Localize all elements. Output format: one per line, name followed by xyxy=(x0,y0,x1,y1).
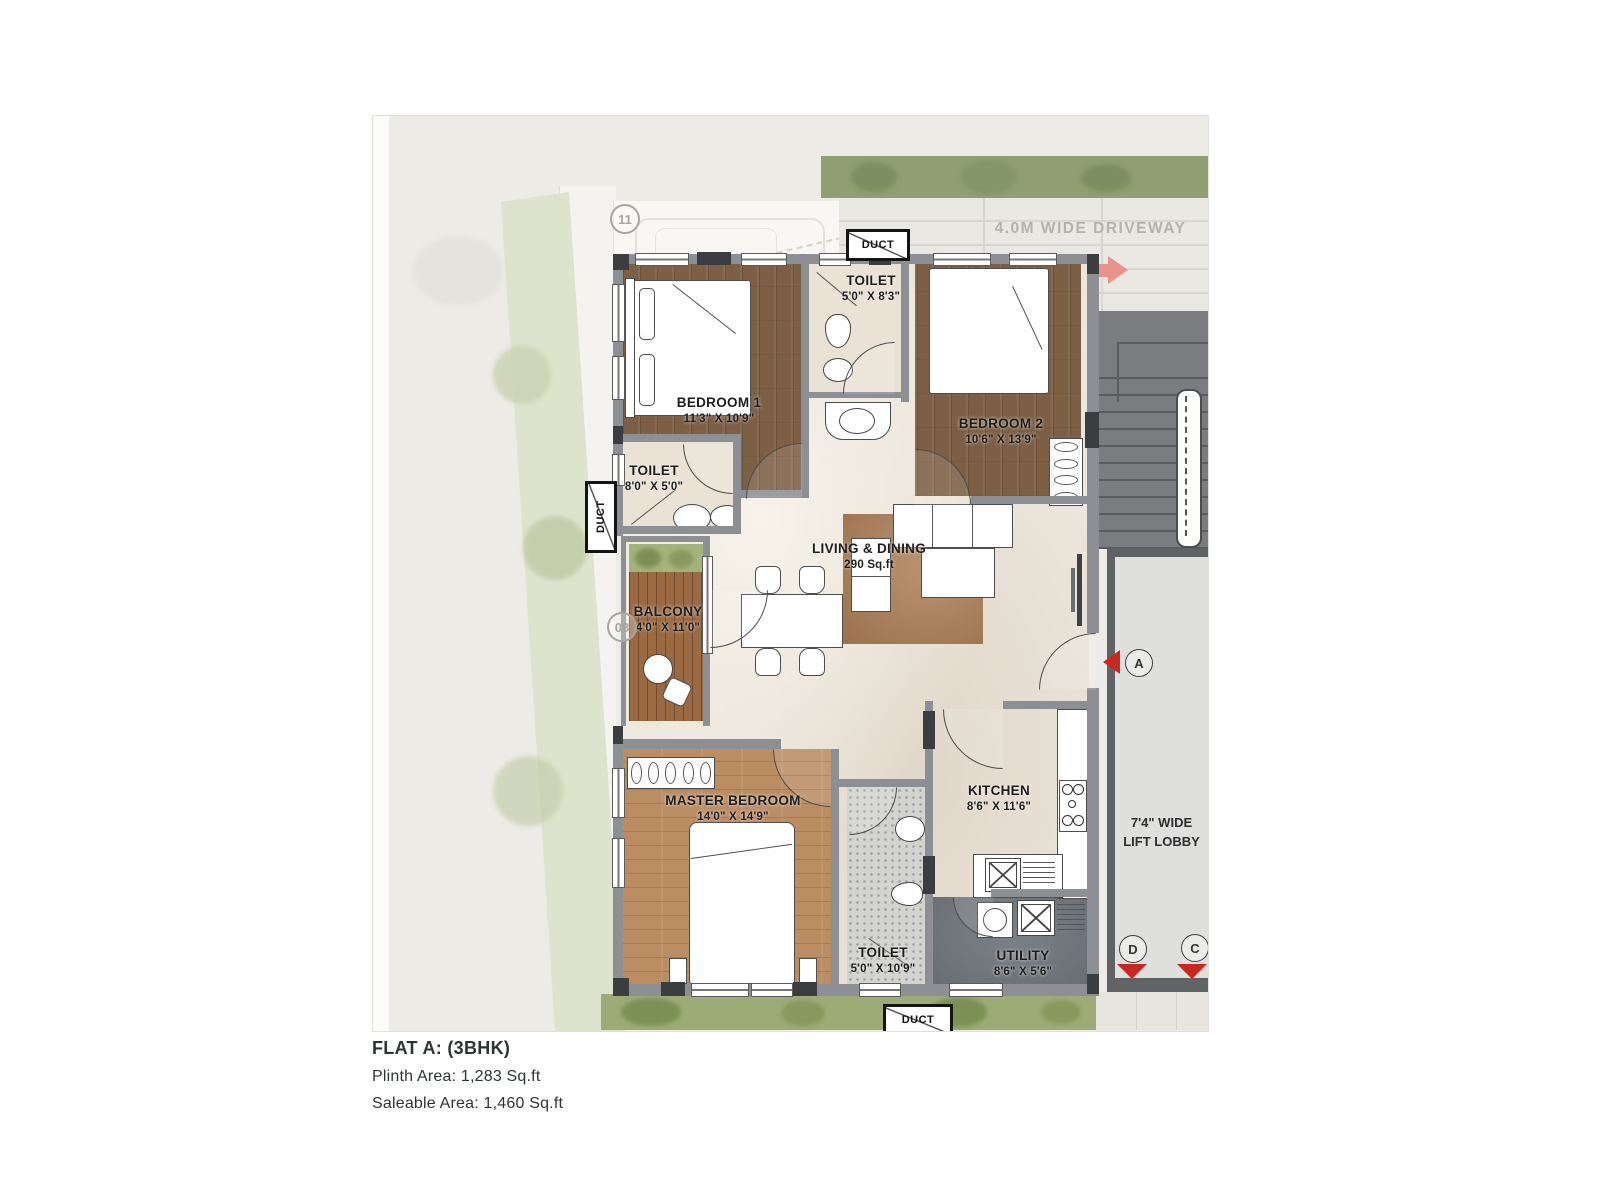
wall-bed1-south-left xyxy=(613,434,741,442)
wall-block xyxy=(1085,412,1099,448)
site-left-margin xyxy=(373,116,389,1031)
tree-blob xyxy=(523,516,587,580)
wall-block xyxy=(697,252,731,265)
lobby-wall xyxy=(1107,978,1208,992)
label-balcony: BALCONY 4'0" X 11'0" xyxy=(634,604,703,634)
window xyxy=(949,983,1003,997)
entry-marker-a: A xyxy=(1125,649,1153,677)
window xyxy=(612,768,625,818)
garden-strip xyxy=(601,994,1096,1030)
label-master-bedroom: MASTER BEDROOM 14'0" X 14'9" xyxy=(665,793,800,823)
wall-utility-north xyxy=(991,889,1099,897)
wall-block xyxy=(923,856,935,894)
hedge-strip xyxy=(821,156,1208,198)
plan-caption: FLAT A: (3BHK) Plinth Area: 1,283 Sq.ft … xyxy=(372,1038,563,1113)
duct-bottom: DUCT xyxy=(883,1004,953,1032)
bed-headboard xyxy=(625,278,635,418)
driveway-direction-arrow-head xyxy=(1108,256,1128,284)
entry-arrow-a xyxy=(1103,650,1120,674)
bedside-table xyxy=(669,958,687,984)
tv-console xyxy=(1071,568,1075,612)
kitchen-sink xyxy=(985,858,1021,892)
plinth-area: Plinth Area: 1,283 Sq.ft xyxy=(372,1068,563,1086)
wall-block xyxy=(613,978,629,996)
entry-arrow-d xyxy=(1117,964,1147,979)
label-bedroom1-toilet: TOILET 8'0" X 5'0" xyxy=(625,463,683,493)
vanity-basin xyxy=(839,408,875,434)
lobby-wall xyxy=(1107,549,1115,991)
wall-block xyxy=(1087,974,1099,994)
wall-bed2-west xyxy=(901,262,909,402)
tv-unit xyxy=(1077,554,1082,626)
window xyxy=(691,983,749,997)
utility-sink xyxy=(1017,900,1055,936)
staircase-landing-line xyxy=(1117,342,1208,344)
wall-master-east xyxy=(831,749,839,986)
pillow xyxy=(639,354,655,406)
window xyxy=(751,983,793,997)
wall-block xyxy=(923,711,935,749)
pillow xyxy=(639,288,655,340)
staircase-direction-dashes xyxy=(1185,396,1187,536)
staircase-railing xyxy=(1176,389,1202,548)
tree-blob xyxy=(493,346,551,404)
bedside-table xyxy=(799,958,817,984)
wall-south xyxy=(613,984,1099,996)
window xyxy=(741,253,787,266)
wall-east-lower xyxy=(1087,688,1099,994)
label-bedroom1: BEDROOM 1 11'3" X 10'9" xyxy=(677,395,761,425)
bed-bedroom2 xyxy=(929,268,1049,394)
dining-chair xyxy=(799,648,825,676)
entry-marker-c: C xyxy=(1181,934,1209,962)
label-common-toilet: TOILET 5'0" X 8'3" xyxy=(842,273,900,303)
wall-bed1-east xyxy=(801,262,809,498)
driveway-label: 4.0M WIDE DRIVEWAY xyxy=(973,220,1208,238)
wall-block xyxy=(793,982,817,996)
wall-block xyxy=(1087,254,1099,274)
window xyxy=(635,253,689,266)
wardrobe-master xyxy=(627,757,715,789)
kitchen-hob xyxy=(1059,780,1087,832)
window xyxy=(612,838,625,888)
wall-toilet1-east xyxy=(733,434,741,534)
utility-drainboard xyxy=(1057,904,1085,930)
wc-master-toilet xyxy=(891,882,923,906)
balcony-planter xyxy=(629,544,703,572)
lift-lobby-label: 7'4" WIDE LIFT LOBBY xyxy=(1115,814,1208,852)
wall-toilet-m-north xyxy=(839,779,933,787)
wall-block xyxy=(613,254,629,270)
window xyxy=(859,983,901,997)
window xyxy=(1009,253,1057,266)
floor-plan-image: 4.0M WIDE DRIVEWAY 7'4" WIDE LIFT LOBBY xyxy=(372,115,1209,1032)
label-living-dining: LIVING & DINING 290 Sq.ft xyxy=(812,541,926,571)
basin-master-toilet xyxy=(895,816,925,842)
dining-chair xyxy=(755,648,781,676)
tree-shadow xyxy=(413,236,503,306)
label-bedroom2: BEDROOM 2 10'6" X 13'9" xyxy=(959,416,1043,446)
plot-number-marker: 08 xyxy=(607,612,637,642)
wall-master-north xyxy=(613,739,781,749)
saleable-area: Saleable Area: 1,460 Sq.ft xyxy=(372,1095,563,1113)
wall-block xyxy=(661,982,685,996)
window xyxy=(933,253,991,266)
wall-block xyxy=(613,426,623,444)
wall-toilet1-south xyxy=(613,526,741,534)
coffee-table xyxy=(921,548,995,598)
entry-arrow-c xyxy=(1177,964,1207,979)
window xyxy=(612,284,625,342)
label-utility: UTILITY 8'6" X 5'6" xyxy=(994,948,1052,978)
entry-marker-d: D xyxy=(1119,935,1147,963)
staircase-landing-line xyxy=(1117,342,1119,402)
label-kitchen: KITCHEN 8'6" X 11'6" xyxy=(967,783,1031,813)
duct-top: DUCT xyxy=(846,229,910,261)
wall-kitchen-north xyxy=(1003,701,1099,709)
wall-block xyxy=(613,726,623,744)
lift-lobby-floor xyxy=(1115,557,1208,978)
window xyxy=(612,356,625,400)
kitchen-drainboard xyxy=(1023,862,1055,886)
duct-left: DUCT xyxy=(585,481,617,553)
parking-number-marker: 11 xyxy=(610,204,640,234)
wall-bed2-south xyxy=(971,496,1089,504)
wall-balcony-top xyxy=(621,536,709,542)
label-master-toilet: TOILET 5'0" X 10'9" xyxy=(851,945,916,975)
pavement xyxy=(1096,992,1208,1030)
lobby-wall xyxy=(1107,549,1208,557)
tree-blob xyxy=(493,756,563,826)
flat-title: FLAT A: (3BHK) xyxy=(372,1038,563,1059)
